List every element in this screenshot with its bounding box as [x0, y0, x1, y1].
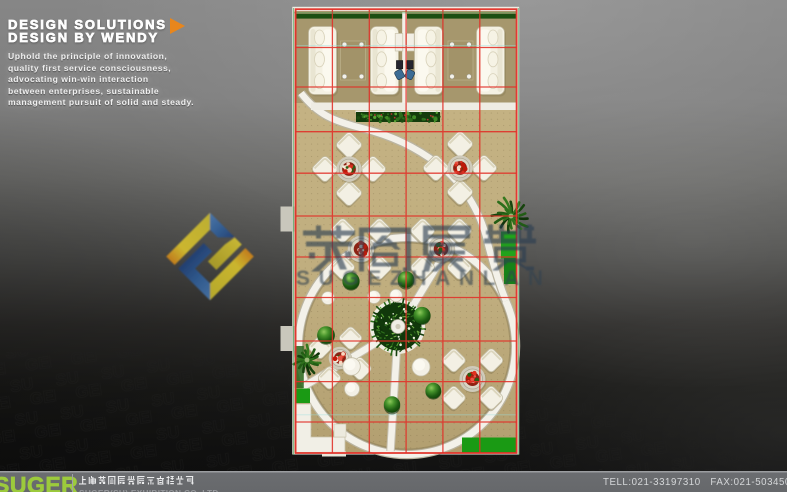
svg-text:SUGEZHANLAN: SUGEZHANLAN — [296, 267, 552, 290]
